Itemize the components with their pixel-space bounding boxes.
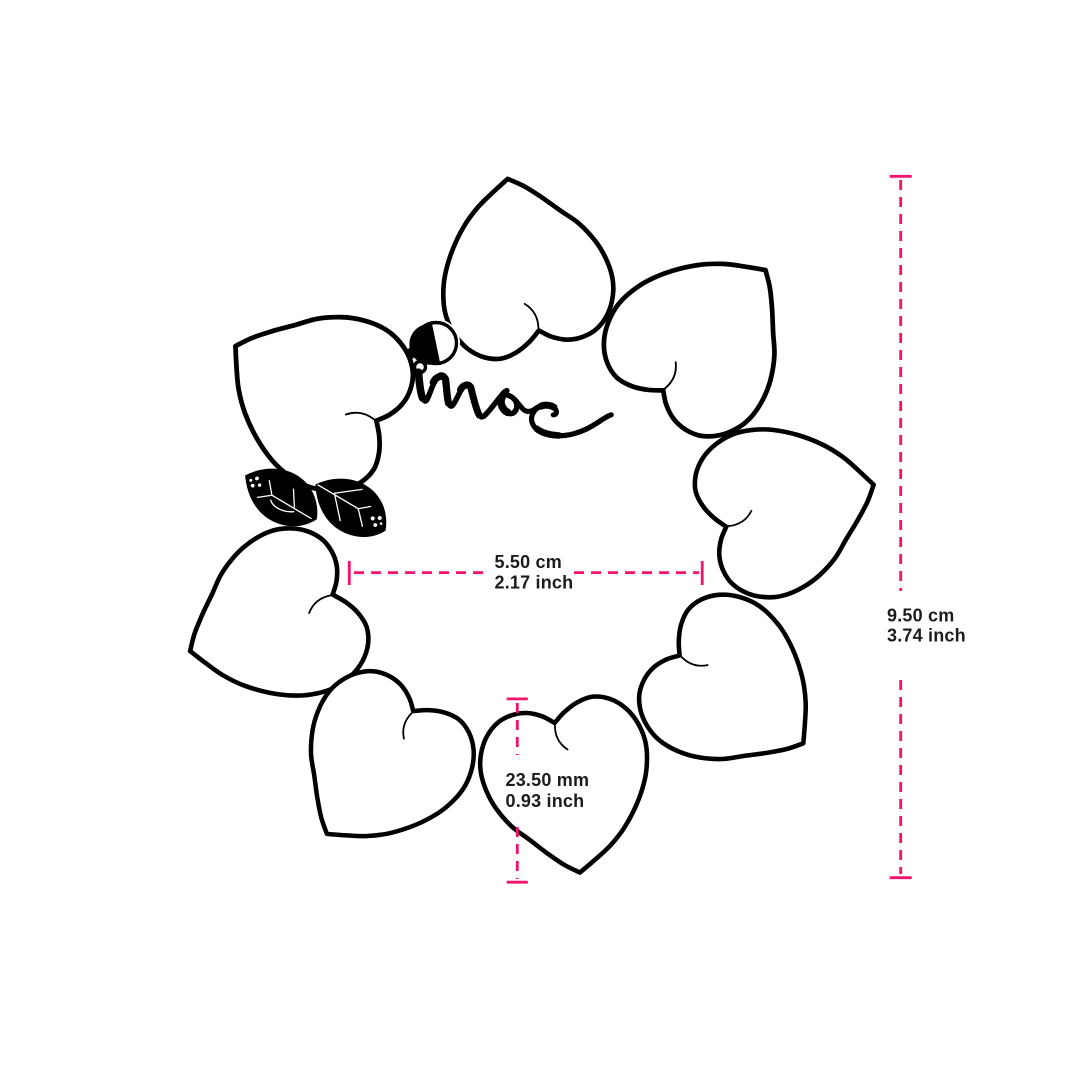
svg-text:3.74 inch: 3.74 inch [887, 626, 966, 646]
svg-text:9.50 cm: 9.50 cm [887, 605, 954, 625]
svg-text:0.93 inch: 0.93 inch [506, 791, 585, 811]
svg-text:5.50 cm: 5.50 cm [495, 552, 562, 572]
svg-text:23.50 mm: 23.50 mm [506, 770, 590, 790]
svg-text:2.17 inch: 2.17 inch [495, 572, 574, 592]
